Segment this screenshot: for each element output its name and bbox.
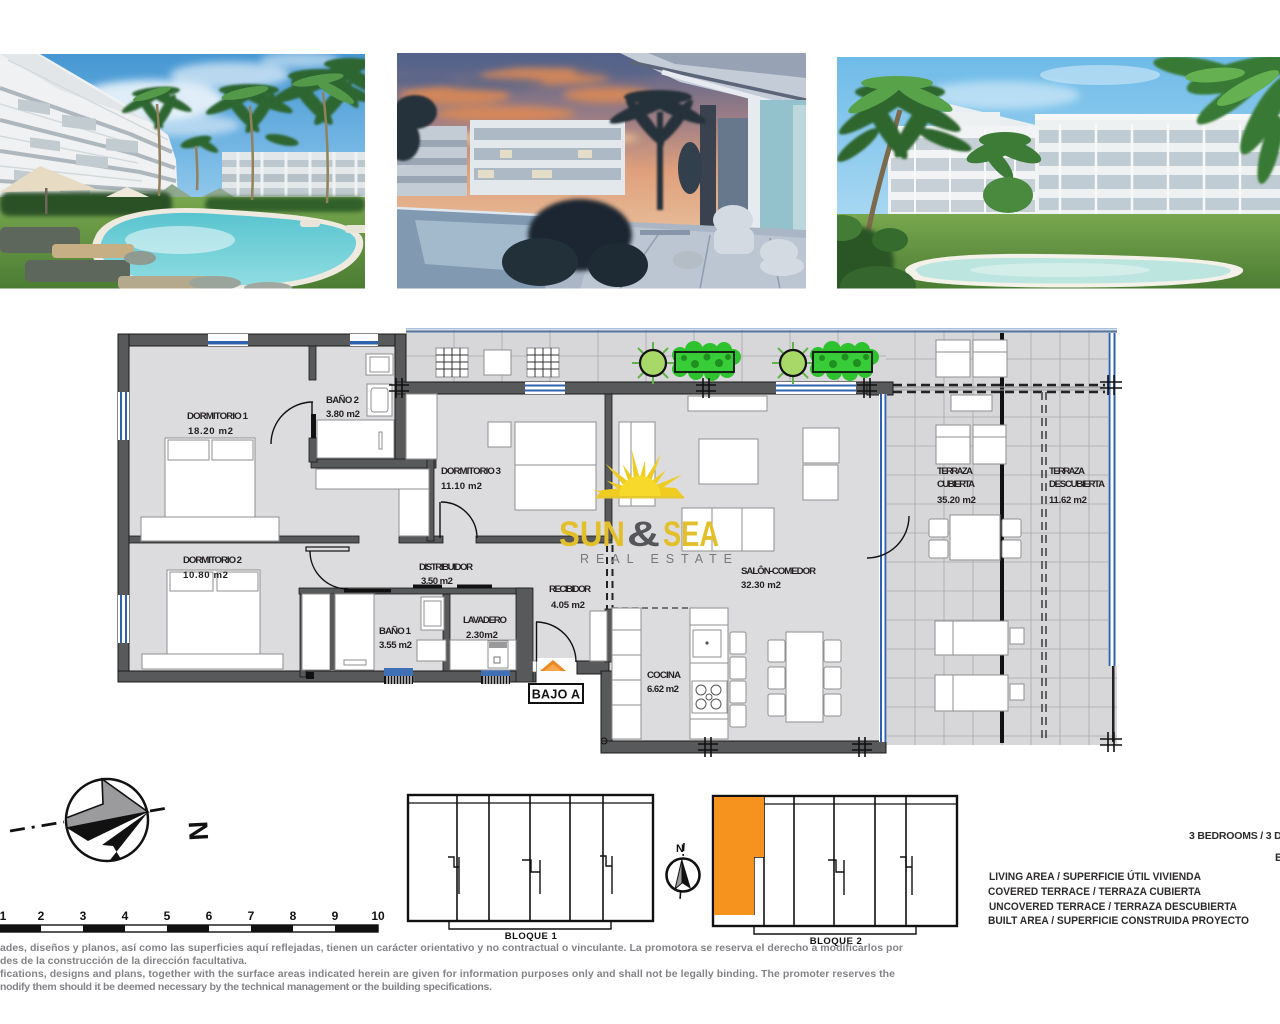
svg-text:fications, designs and plans,: fications, designs and plans, together w… [0, 968, 895, 980]
svg-text:COCINA: COCINA [647, 670, 681, 681]
svg-text:LAVADERO: LAVADERO [463, 615, 508, 626]
svg-text:LIVING AREA / SUPERFICIE ÚTIL: LIVING AREA / SUPERFICIE ÚTIL VIVIENDA [989, 870, 1201, 883]
svg-text:10.80 m2: 10.80 m2 [183, 570, 228, 581]
svg-text:11.10 m2: 11.10 m2 [441, 481, 482, 492]
svg-text:B: B [1275, 852, 1280, 864]
svg-text:3.55 m2: 3.55 m2 [379, 640, 412, 651]
svg-text:3: 3 [80, 909, 87, 923]
svg-text:N: N [183, 820, 214, 841]
svg-text:2.30m2: 2.30m2 [466, 630, 498, 641]
svg-text:DORMITORIO 1: DORMITORIO 1 [187, 411, 249, 422]
svg-text:&: & [627, 515, 660, 554]
svg-text:SALÔN-COMEDOR: SALÔN-COMEDOR [741, 565, 816, 577]
svg-text:3.50 m2: 3.50 m2 [421, 576, 453, 587]
svg-text:32.30 m2: 32.30 m2 [741, 580, 781, 591]
svg-text:7: 7 [248, 909, 255, 923]
svg-text:nodify them should it be deeme: nodify them should it be deemed necessar… [0, 981, 492, 993]
svg-text:4.05 m2: 4.05 m2 [551, 600, 585, 611]
svg-text:SEA: SEA [663, 515, 719, 554]
svg-text:35.20 m2: 35.20 m2 [937, 495, 976, 506]
svg-text:DORMITORIO 3: DORMITORIO 3 [441, 466, 501, 477]
svg-text:TERRAZA: TERRAZA [937, 466, 973, 477]
svg-text:SUN: SUN [559, 515, 625, 554]
svg-text:4: 4 [122, 909, 129, 923]
svg-text:des de la construcción de la d: des de la construcción de la dirección f… [0, 955, 247, 967]
svg-text:3.80 m2: 3.80 m2 [326, 409, 360, 420]
svg-text:BAÑO 2: BAÑO 2 [326, 395, 359, 406]
svg-text:DORMITORIO 2: DORMITORIO 2 [183, 555, 242, 566]
svg-text:BUILT AREA / SUPERFICIE CONSTR: BUILT AREA / SUPERFICIE CONSTRUIDA PROYE… [988, 915, 1249, 927]
svg-text:BAÑO 1: BAÑO 1 [379, 626, 412, 637]
svg-text:18.20 m2: 18.20 m2 [188, 426, 233, 437]
svg-text:ades, diseños y planos, así co: ades, diseños y planos, así como las sup… [0, 942, 903, 954]
svg-text:DISTRIBUIDOR: DISTRIBUIDOR [419, 562, 473, 573]
svg-text:6: 6 [206, 909, 213, 923]
svg-text:UNCOVERED TERRACE / TERRAZA DE: UNCOVERED TERRACE / TERRAZA DESCUBIERTA [989, 901, 1237, 913]
svg-text:1: 1 [0, 909, 7, 923]
svg-text:8: 8 [290, 909, 297, 923]
svg-text:RECIBIDOR: RECIBIDOR [549, 584, 591, 595]
svg-text:9: 9 [332, 909, 339, 923]
svg-text:CUBIERTA: CUBIERTA [937, 479, 975, 490]
svg-text:3 BEDROOMS / 3 DORMITORIOS: 3 BEDROOMS / 3 DORMITORIOS [1189, 830, 1280, 842]
svg-text:REAL ESTATE: REAL ESTATE [580, 552, 738, 566]
svg-text:DESCUBIERTA: DESCUBIERTA [1049, 479, 1105, 490]
svg-text:5: 5 [164, 909, 171, 923]
svg-text:6.62 m2: 6.62 m2 [647, 684, 679, 695]
svg-text:TERRAZA: TERRAZA [1049, 466, 1085, 477]
svg-text:2: 2 [38, 909, 45, 923]
svg-text:BAJO A: BAJO A [532, 688, 581, 702]
svg-text:10: 10 [371, 909, 385, 923]
svg-text:COVERED TERRACE / TERRAZA CUBI: COVERED TERRACE / TERRAZA CUBIERTA [988, 886, 1201, 898]
svg-text:11.62 m2: 11.62 m2 [1049, 495, 1087, 506]
svg-text:N: N [676, 843, 684, 855]
svg-text:BLOQUE 1: BLOQUE 1 [505, 931, 558, 942]
